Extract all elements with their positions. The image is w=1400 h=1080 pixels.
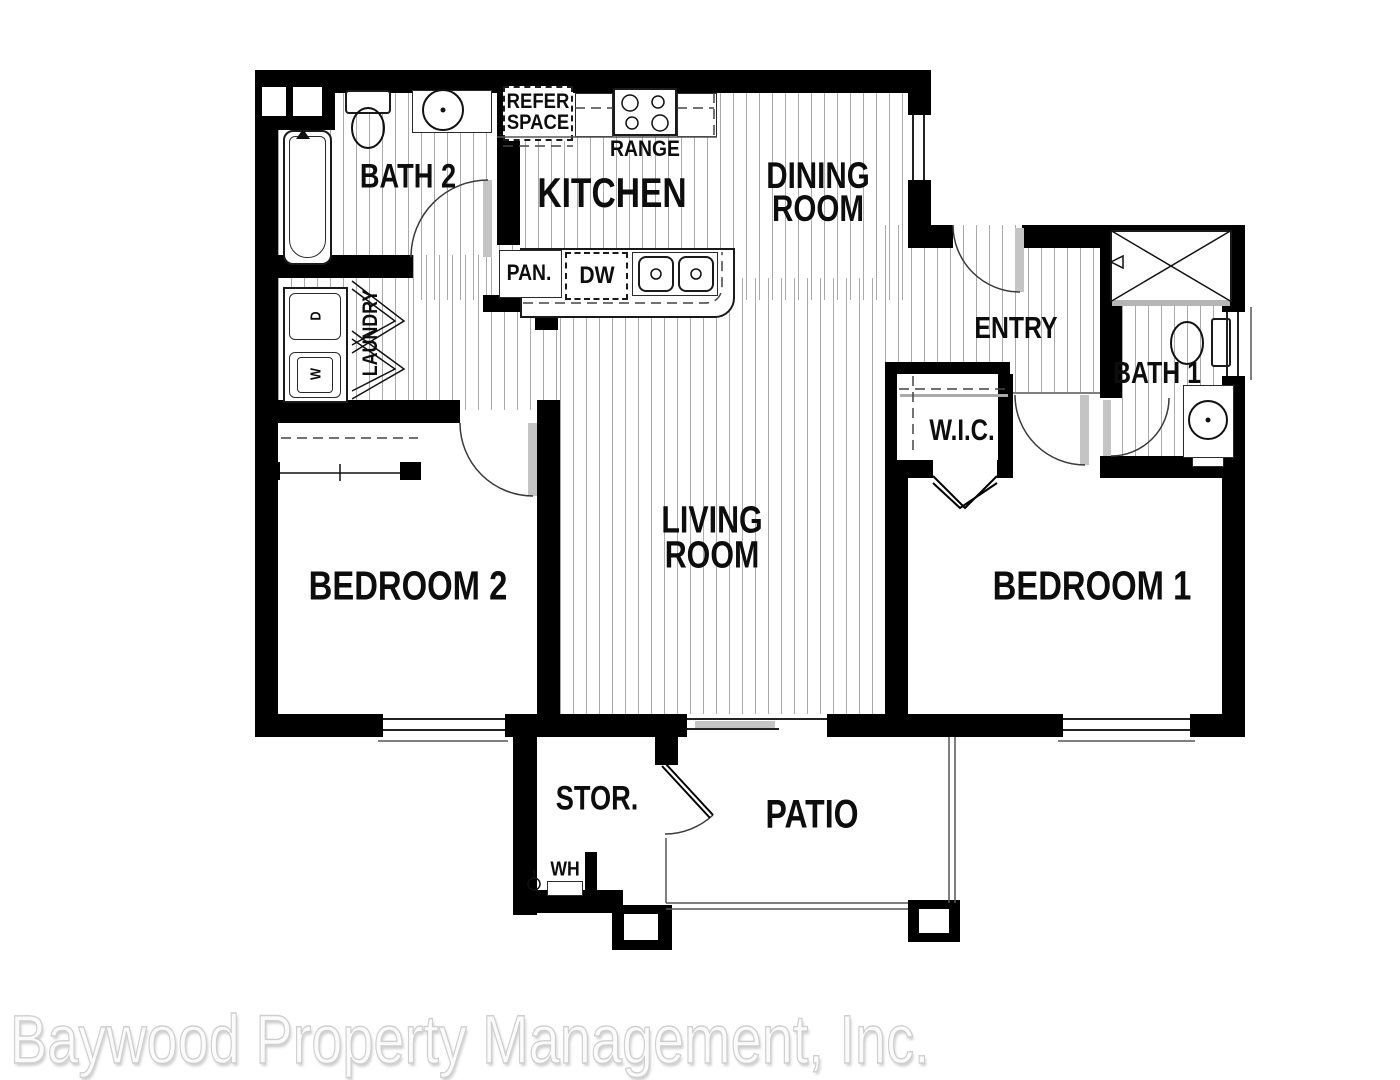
label-entry: ENTRY <box>974 310 1057 346</box>
window-lines-bedroom2 <box>383 719 505 730</box>
window-lines-bedroom1 <box>1063 719 1190 730</box>
sink-drain-right <box>691 269 701 279</box>
sliding-door-track <box>687 719 827 729</box>
burner-1 <box>622 95 638 111</box>
watermark-text: Baywood Property Management, Inc. <box>10 1000 930 1079</box>
door-arc-entry <box>953 225 1020 292</box>
burner-2 <box>652 96 664 108</box>
label-bedroom2: BEDROOM 2 <box>309 563 508 610</box>
door-arc-bath1 <box>1111 398 1169 456</box>
label-bath2: BATH 2 <box>360 158 456 197</box>
burner-4 <box>652 115 668 131</box>
sink-drain-bath2 <box>441 108 446 113</box>
burner-3 <box>626 117 638 129</box>
label-living-line2: ROOM <box>665 535 760 578</box>
label-dryer: D <box>308 311 325 320</box>
storage-door-leaf <box>665 763 713 815</box>
label-pantry: PAN. <box>507 260 552 286</box>
window-lines-bath1 <box>1227 312 1238 376</box>
tub-drain-arrow <box>296 129 310 139</box>
label-dining-line2: ROOM <box>772 188 864 230</box>
window-lines-dining <box>913 115 924 180</box>
patio-edge-right <box>949 737 955 903</box>
label-range: RANGE <box>610 136 680 162</box>
label-bedroom1: BEDROOM 1 <box>993 563 1192 610</box>
label-water-heater: WH <box>550 859 579 882</box>
label-wic: W.I.C. <box>929 414 994 448</box>
patio-edge-bottom <box>666 903 908 909</box>
toilet-bowl-bath2 <box>352 108 384 148</box>
label-refer-line2: SPACE <box>507 111 569 135</box>
label-patio: PATIO <box>765 793 858 838</box>
sink-drain-left <box>651 269 661 279</box>
door-arc-storage <box>665 815 713 834</box>
label-washer: W <box>308 368 325 380</box>
shower-head-arrow <box>1111 256 1123 268</box>
storage-door-leaf-inner <box>662 766 710 818</box>
door-arc-bedroom1 <box>1015 395 1085 465</box>
wh-valve <box>528 878 540 890</box>
label-storage: STOR. <box>556 780 639 819</box>
label-laundry: LAUNDRY <box>359 290 383 377</box>
floor-plan: BATH 2 KITCHEN DINING ROOM ENTRY BATH 1 … <box>0 0 1400 1080</box>
door-arc-bedroom2 <box>460 423 533 496</box>
sink-drain-bath1 <box>1206 418 1211 423</box>
label-kitchen: KITCHEN <box>537 169 686 217</box>
label-dishwasher: DW <box>579 262 614 290</box>
label-bath1: BATH 1 <box>1113 355 1201 391</box>
